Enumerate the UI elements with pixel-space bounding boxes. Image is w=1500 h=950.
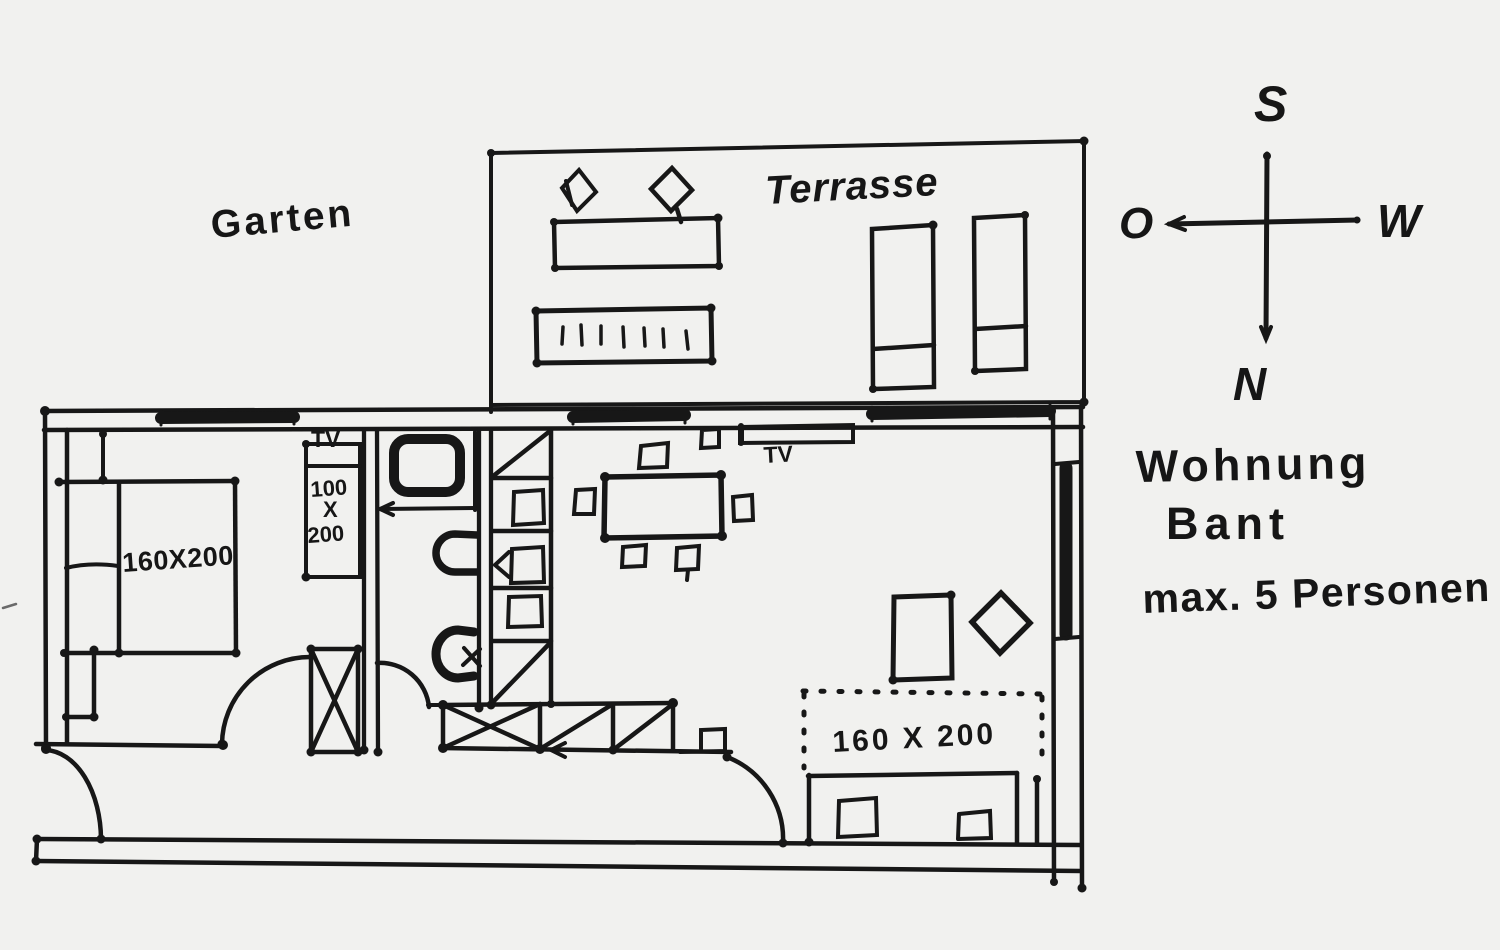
svg-text:Terrasse: Terrasse — [764, 160, 939, 213]
svg-text:TV: TV — [763, 440, 794, 468]
svg-text:TV: TV — [311, 426, 341, 452]
svg-text:N: N — [1233, 358, 1267, 410]
svg-text:O: O — [1119, 199, 1153, 248]
svg-text:200: 200 — [307, 520, 345, 548]
svg-text:X: X — [323, 497, 338, 522]
svg-text:Bant: Bant — [1166, 498, 1290, 549]
svg-text:Wohnung: Wohnung — [1135, 437, 1370, 492]
svg-text:W: W — [1377, 195, 1424, 247]
svg-text:S: S — [1254, 76, 1287, 132]
